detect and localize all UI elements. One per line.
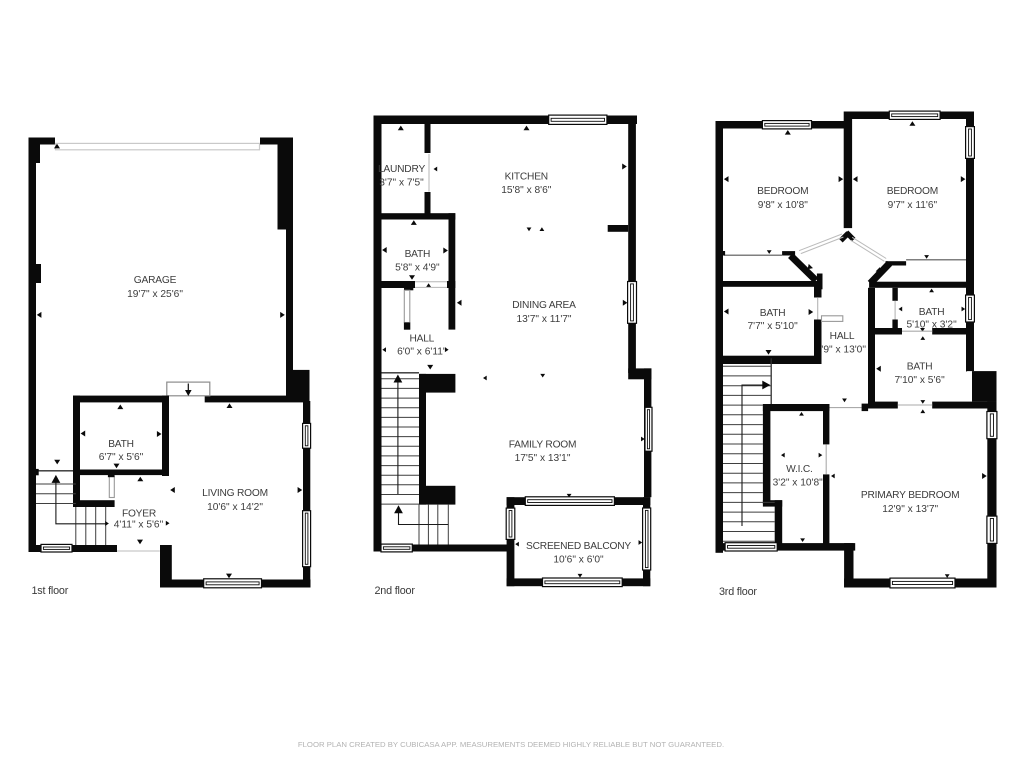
svg-text:KITCHEN: KITCHEN <box>505 172 548 183</box>
svg-text:LIVING ROOM: LIVING ROOM <box>202 488 268 499</box>
svg-text:7'10" x 5'6": 7'10" x 5'6" <box>894 375 945 386</box>
svg-text:15'8" x 8'6": 15'8" x 8'6" <box>501 185 552 196</box>
svg-text:BATH: BATH <box>907 362 933 373</box>
svg-text:FAMILY ROOM: FAMILY ROOM <box>509 440 577 451</box>
svg-text:BATH: BATH <box>760 308 786 319</box>
svg-text:13'7" x 11'7": 13'7" x 11'7" <box>516 314 571 325</box>
svg-text:6'0" x 6'11": 6'0" x 6'11" <box>397 347 447 358</box>
svg-text:BEDROOM: BEDROOM <box>887 186 938 197</box>
svg-text:3'7" x 7'5": 3'7" x 7'5" <box>379 178 424 189</box>
svg-text:4'11" x 5'6": 4'11" x 5'6" <box>114 520 164 531</box>
svg-text:GARAGE: GARAGE <box>134 275 177 286</box>
svg-text:HALL: HALL <box>830 331 855 342</box>
svg-text:PRIMARY BEDROOM: PRIMARY BEDROOM <box>861 490 960 501</box>
svg-text:BEDROOM: BEDROOM <box>757 186 808 197</box>
svg-text:BATH: BATH <box>919 307 945 318</box>
svg-text:BATH: BATH <box>108 439 134 450</box>
svg-text:3rd floor: 3rd floor <box>719 586 757 598</box>
svg-text:W.I.C.: W.I.C. <box>786 464 813 475</box>
svg-text:10'6" x 14'2": 10'6" x 14'2" <box>207 502 263 513</box>
svg-text:3'2" x 10'8": 3'2" x 10'8" <box>773 478 824 489</box>
svg-text:HALL: HALL <box>409 334 434 345</box>
svg-text:12'9" x 13'7": 12'9" x 13'7" <box>882 504 938 515</box>
svg-text:17'5" x 13'1": 17'5" x 13'1" <box>515 453 571 464</box>
svg-text:2nd floor: 2nd floor <box>375 585 416 597</box>
svg-text:5'8" x 4'9": 5'8" x 4'9" <box>395 263 440 274</box>
svg-text:DINING AREA: DINING AREA <box>512 300 576 311</box>
svg-text:9'7" x 11'6": 9'7" x 11'6" <box>888 200 938 211</box>
svg-text:FLOOR PLAN CREATED BY CUBICASA: FLOOR PLAN CREATED BY CUBICASA APP. MEAS… <box>298 740 724 749</box>
svg-text:19'7" x 25'6": 19'7" x 25'6" <box>127 289 183 300</box>
svg-text:'9" x 13'0": '9" x 13'0" <box>821 345 866 356</box>
svg-text:6'7" x 5'6": 6'7" x 5'6" <box>99 452 144 463</box>
svg-text:FOYER: FOYER <box>122 509 156 520</box>
svg-text:1st floor: 1st floor <box>32 585 69 597</box>
svg-text:10'6" x 6'0": 10'6" x 6'0" <box>553 555 604 566</box>
svg-text:BATH: BATH <box>405 249 431 260</box>
svg-text:9'8" x 10'8": 9'8" x 10'8" <box>758 200 809 211</box>
svg-text:LAUNDRY: LAUNDRY <box>378 164 426 175</box>
svg-text:SCREENED BALCONY: SCREENED BALCONY <box>526 541 631 552</box>
svg-text:7'7" x 5'10": 7'7" x 5'10" <box>747 321 798 332</box>
